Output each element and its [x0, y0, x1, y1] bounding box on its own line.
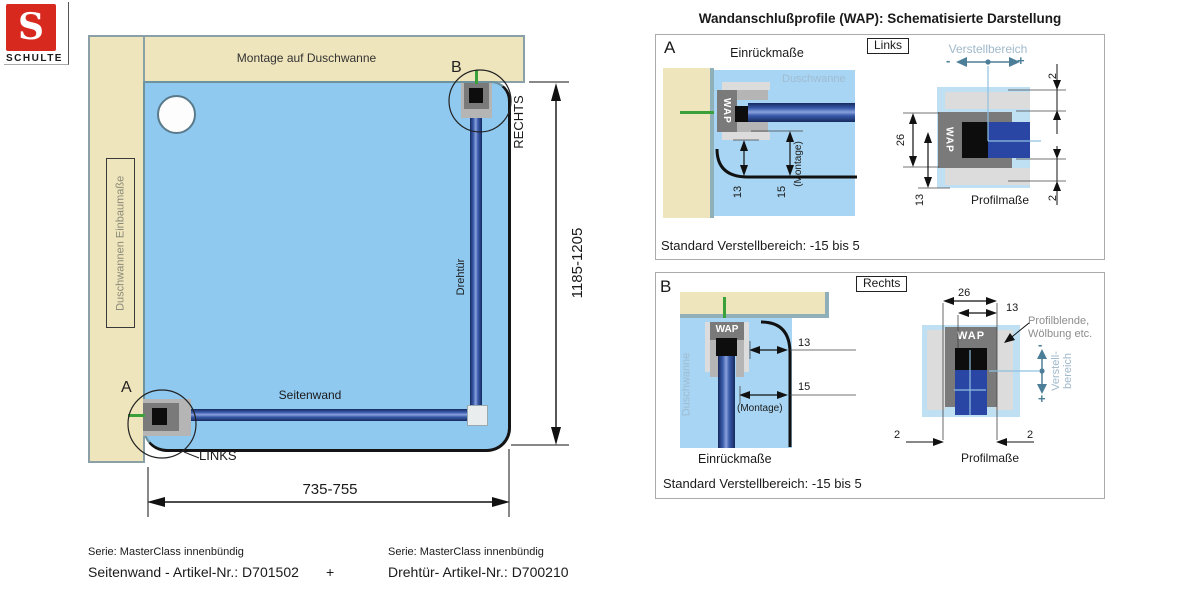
- panel-a-dim13-profile: 13: [914, 194, 927, 206]
- panel-b-wall: [680, 292, 829, 318]
- panel-b-profile-wap-label: WAP: [947, 330, 995, 343]
- panel-a-dim13-wrap: 13: [732, 180, 744, 204]
- panel-a-blende-bottom: [722, 132, 770, 140]
- wap-profile-b-insert: [469, 88, 483, 103]
- sidewall-label: Seitenwand: [255, 389, 365, 403]
- panel-a-profile-glass-end: [988, 122, 1030, 158]
- panel-a-dim2-bottom: 2: [1047, 195, 1060, 201]
- panel-a-standard-label: Standard Verstellbereich: -15 bis 5: [661, 239, 860, 254]
- panel-b-wap-insert: [716, 338, 737, 356]
- panel-b-dim13: 13: [798, 337, 810, 350]
- height-dim-label-wrap: 1185-1205: [569, 218, 587, 308]
- panel-b-glass: [718, 354, 735, 448]
- panel-b-side-tag: Rechts: [856, 276, 907, 292]
- panel-b-marker: B: [660, 277, 671, 297]
- panel-b-verstell-wrap: Verstell- bereich: [1048, 328, 1076, 414]
- height-dim-label: 1185-1205: [569, 228, 586, 299]
- panel-b-profile-strip-left: [927, 330, 945, 410]
- corner-connector: [467, 405, 488, 426]
- panel-b-profile-strip-right: [995, 330, 1013, 410]
- left-wall-label: Duschwannen Einbaumaße: [114, 175, 127, 310]
- panel-a-wall: [663, 68, 714, 218]
- panel-a-profile-strip-top: [945, 92, 1030, 109]
- panel-a-wap-label: WAP: [721, 98, 732, 124]
- logo-brand: SCHULTE: [6, 53, 63, 65]
- drain-icon: [157, 95, 196, 134]
- wall-anchor-mark-b: [475, 70, 478, 84]
- panel-a-wap-label-wrap: WAP: [717, 92, 736, 130]
- footer-plus: +: [326, 564, 334, 580]
- schulte-logo-icon: S: [6, 4, 56, 51]
- wap-profile-a-insert: [152, 408, 167, 425]
- door-glass-panel: [470, 100, 482, 420]
- marker-a: A: [121, 379, 132, 397]
- panel-b-einrueckmasse-label: Einrückmaße: [698, 452, 772, 466]
- logo-card: S SCHULTE: [4, 2, 69, 65]
- rechts-label: RECHTS: [512, 95, 527, 148]
- panel-a-wap-insert: [735, 106, 748, 122]
- panel-b-dim13-profile: 13: [1006, 302, 1018, 315]
- panel-a-montage-wrap: (Montage): [793, 132, 805, 196]
- panel-a-dim2-top: 2: [1047, 73, 1060, 79]
- panel-b-dim2-right: 2: [1027, 429, 1033, 442]
- panel-a-profile-strip-bottom: [945, 168, 1030, 185]
- wall-anchor-mark-a: [128, 414, 145, 417]
- marker-b: B: [451, 59, 462, 77]
- panel-a-dim15-wrap: 15: [776, 180, 788, 204]
- left-wall-label-box: Duschwannen Einbaumaße: [106, 158, 135, 328]
- panel-a-einrueckmasse-label: Einrückmaße: [712, 46, 822, 60]
- panel-a-duschwanne-label: Duschwanne: [782, 73, 846, 86]
- panel-a-minus: -: [946, 54, 950, 69]
- footer-right-series: Serie: MasterClass innenbündig: [388, 546, 544, 559]
- sidewall-glass-panel: [163, 409, 473, 421]
- panel-a-profile-wap-wrap: WAP: [939, 120, 959, 160]
- footer-left-series: Serie: MasterClass innenbündig: [88, 546, 244, 559]
- panel-a-dim2bot-wrap: 2: [1047, 190, 1059, 206]
- panel-b-montage-label: (Montage): [737, 403, 783, 415]
- panel-b-duschwanne-wrap: Duschwanne: [681, 329, 694, 441]
- panel-b-verstell-line2: bereich: [1062, 351, 1074, 391]
- links-label: LINKS: [199, 449, 237, 464]
- panel-b-minus: -: [1038, 338, 1042, 353]
- width-dim-label: 735-755: [280, 481, 380, 498]
- panel-b-dim2-left: 2: [894, 429, 900, 442]
- panel-b-standard-label: Standard Verstellbereich: -15 bis 5: [663, 477, 862, 492]
- panel-a-profilmasse-label: Profilmaße: [955, 194, 1045, 208]
- panel-b-plus: +: [1038, 392, 1046, 407]
- panel-a-profile-wap-label: WAP: [944, 127, 955, 153]
- panel-b-profilmasse-label: Profilmaße: [942, 452, 1038, 466]
- panel-a-blende-top: [722, 82, 770, 90]
- panel-a-profile-insert: [962, 122, 988, 158]
- panel-b-profile-glass-end: [955, 370, 987, 415]
- panel-b-dim26: 26: [958, 287, 970, 300]
- footer-left-article: Seitenwand - Artikel-Nr.: D701502: [88, 564, 299, 580]
- schulte-shower-datasheet: S SCHULTE Montage auf Duschwanne Duschwa…: [0, 0, 1196, 600]
- panel-a-glass: [748, 103, 855, 122]
- panel-a-montage-label: (Montage): [793, 141, 805, 187]
- panel-b-anchor-mark: [723, 297, 726, 318]
- panel-a-marker: A: [664, 38, 675, 58]
- panel-a-side-tag: Links: [867, 38, 909, 54]
- panel-a-anchor-mark: [680, 111, 714, 114]
- panel-a-dim26: 26: [895, 134, 908, 146]
- panel-b-verstell-line1: Verstell-: [1050, 351, 1062, 391]
- logo-letter: S: [18, 7, 44, 48]
- rechts-label-wrap: RECHTS: [511, 77, 527, 167]
- door-label-wrap: Drehtür: [454, 247, 468, 307]
- panel-a-dim13: 13: [732, 186, 745, 198]
- panel-b-profilblende-line1: Profilblende,: [1028, 315, 1092, 328]
- panel-a-dim15: 15: [776, 186, 789, 198]
- panel-a-plus: +: [1017, 54, 1025, 69]
- panel-a-dim13p-wrap: 13: [914, 188, 926, 212]
- panel-b-profile-insert: [955, 348, 987, 370]
- panels-title: Wandanschlußprofile (WAP): Schematisiert…: [650, 11, 1110, 27]
- panel-b-duschwanne-label: Duschwanne: [681, 353, 694, 417]
- panel-a-dim26-wrap: 26: [895, 128, 907, 152]
- panel-b-dim15: 15: [798, 381, 810, 394]
- panel-a-dim2top-wrap: 2: [1047, 68, 1059, 84]
- footer-right-article: Drehtür- Artikel-Nr.: D700210: [388, 564, 569, 580]
- links-leader-line: [184, 452, 199, 458]
- panel-b-wap-label: WAP: [711, 324, 743, 336]
- door-label: Drehtür: [455, 259, 468, 296]
